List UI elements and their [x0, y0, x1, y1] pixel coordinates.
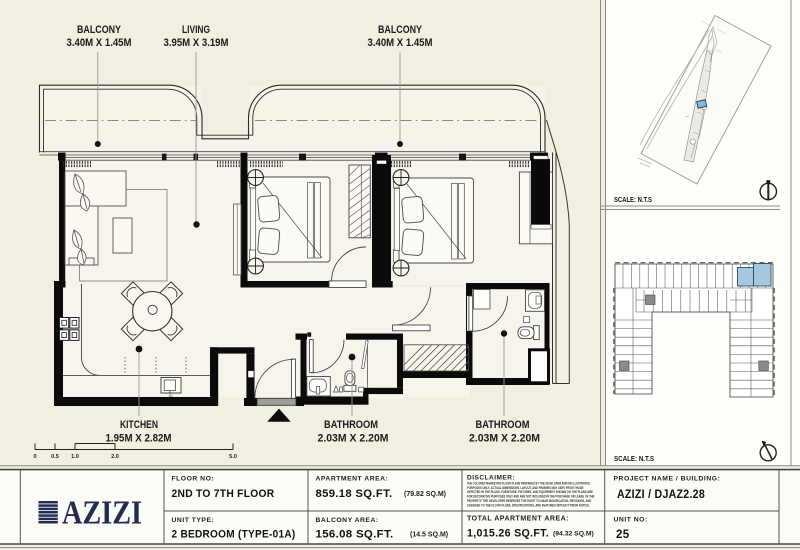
svg-text:3.40M X 1.45M: 3.40M X 1.45M	[67, 37, 132, 49]
svg-text:2.03M X 2.20M: 2.03M X 2.20M	[469, 433, 540, 445]
svg-text:859.18 SQ.FT.: 859.18 SQ.FT.	[316, 488, 393, 500]
svg-text:AZIZI: AZIZI	[62, 495, 142, 532]
svg-text:(79.82 SQ.M): (79.82 SQ.M)	[404, 491, 446, 498]
svg-text:AZIZI / DJAZ2.28: AZIZI / DJAZ2.28	[617, 489, 705, 501]
svg-text:BATHROOM: BATHROOM	[476, 419, 530, 431]
svg-text:SCALE: N.T.S: SCALE: N.T.S	[614, 197, 652, 204]
svg-text:2.0: 2.0	[111, 454, 119, 460]
svg-text:LIVING: LIVING	[182, 24, 210, 36]
svg-text:APARTMENT AREA:: APARTMENT AREA:	[316, 476, 389, 483]
svg-text:1.0: 1.0	[71, 454, 79, 460]
svg-text:40: 40	[169, 394, 173, 398]
svg-text:DISCLAIMER:: DISCLAIMER:	[467, 475, 515, 482]
svg-text:156.08 SQ.FT.: 156.08 SQ.FT.	[316, 529, 394, 541]
svg-text:KITCHEN: KITCHEN	[120, 419, 158, 431]
svg-text:(14.5 SQ.M): (14.5 SQ.M)	[410, 532, 448, 539]
svg-text:UNIT TYPE:: UNIT TYPE:	[172, 517, 215, 524]
svg-text:2 BEDROOM (TYPE-01A): 2 BEDROOM (TYPE-01A)	[172, 529, 296, 541]
svg-text:1,015.26 SQ.FT.: 1,015.26 SQ.FT.	[467, 528, 549, 540]
svg-text:2.03M X 2.20M: 2.03M X 2.20M	[318, 433, 389, 445]
svg-text:CHANGES TO THE FLOOR PLANS, SP: CHANGES TO THE FLOOR PLANS, SPECIFICATIO…	[467, 503, 590, 507]
svg-text:(94.32 SQ.M): (94.32 SQ.M)	[553, 531, 594, 538]
svg-text:TOTAL APARTMENT AREA:: TOTAL APARTMENT AREA:	[467, 516, 569, 523]
svg-text:0.5: 0.5	[51, 454, 59, 460]
svg-text:SCALE: N.T.S: SCALE: N.T.S	[614, 456, 654, 463]
svg-text:BATHROOM: BATHROOM	[324, 419, 378, 431]
svg-text:BALCONY: BALCONY	[77, 24, 121, 36]
svg-text:FLOOR NO:: FLOOR NO:	[172, 476, 215, 483]
svg-text:PROJECT NAME / BUILDING:: PROJECT NAME / BUILDING:	[614, 476, 721, 483]
svg-text:3.95M X 3.19M: 3.95M X 3.19M	[164, 37, 229, 49]
svg-text:2ND TO 7TH FLOOR: 2ND TO 7TH FLOOR	[172, 488, 275, 500]
svg-text:5.0: 5.0	[229, 454, 237, 460]
svg-text:3.40M X 1.45M: 3.40M X 1.45M	[368, 37, 433, 49]
svg-text:0: 0	[33, 454, 36, 460]
svg-text:1.95M X 2.82M: 1.95M X 2.82M	[106, 433, 172, 445]
svg-text:25: 25	[616, 529, 630, 541]
svg-text:BALCONY AREA:: BALCONY AREA:	[316, 517, 379, 524]
svg-text:UNIT NO:: UNIT NO:	[614, 517, 648, 524]
svg-text:BALCONY: BALCONY	[378, 24, 422, 36]
